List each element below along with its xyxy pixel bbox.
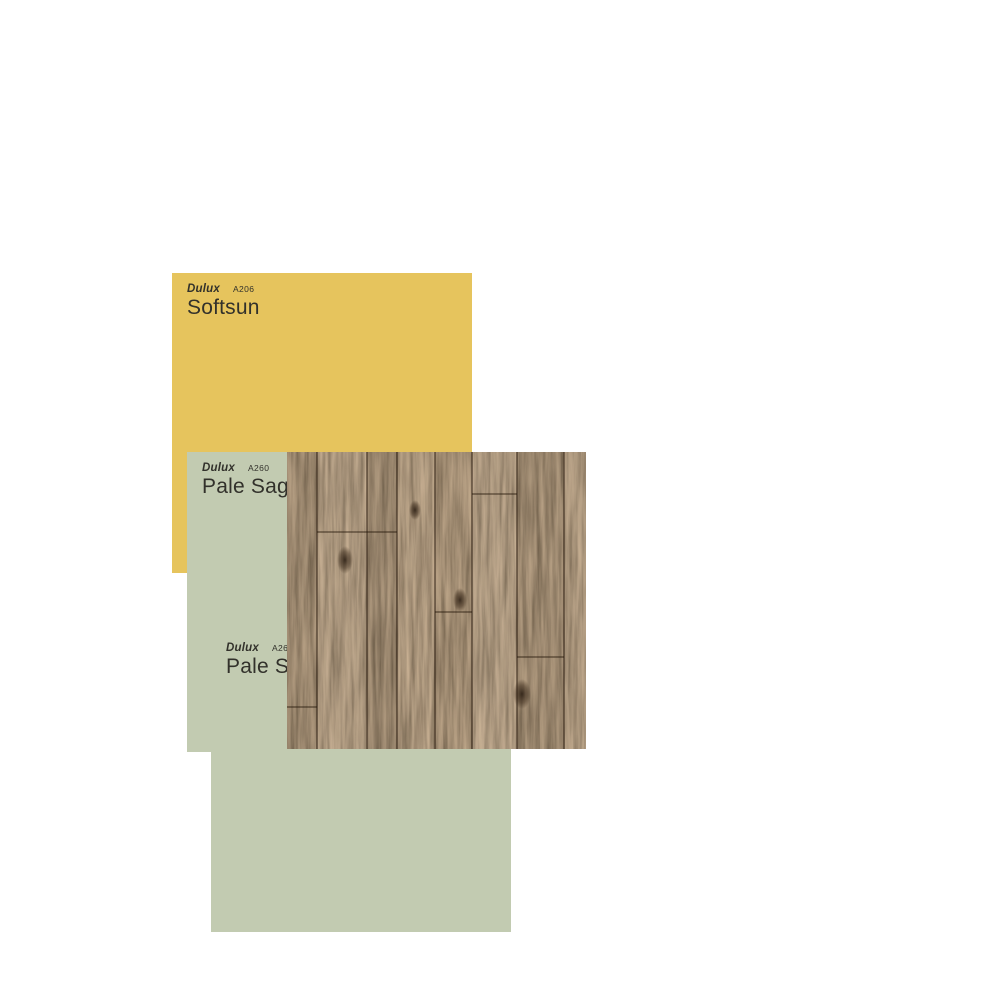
swatch-header: Dulux A206 xyxy=(187,283,457,295)
wood-texture-image xyxy=(287,452,586,749)
paint-code: A260 xyxy=(248,463,269,473)
dulux-logo: Dulux xyxy=(187,283,220,295)
dulux-logo: Dulux xyxy=(226,642,259,654)
dulux-logo: Dulux xyxy=(202,462,235,474)
paint-name: Softsun xyxy=(187,296,457,320)
moodboard-canvas: Dulux A206 Softsun Dulux A260 Pale Sage … xyxy=(0,0,1000,1000)
timber-flooring-sample[interactable] xyxy=(287,452,586,749)
paint-code: A206 xyxy=(233,284,254,294)
